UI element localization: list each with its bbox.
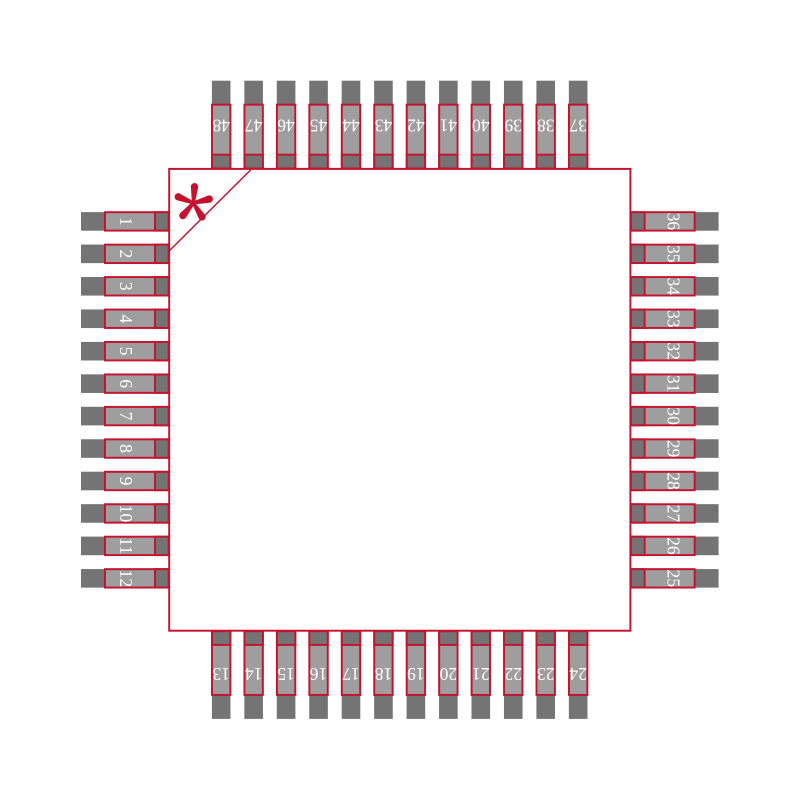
svg-text:21: 21 — [472, 664, 490, 684]
svg-text:46: 46 — [277, 116, 295, 136]
svg-text:19: 19 — [407, 664, 425, 684]
svg-text:42: 42 — [407, 116, 425, 136]
svg-text:10: 10 — [116, 505, 136, 523]
svg-text:16: 16 — [310, 664, 328, 684]
svg-text:14: 14 — [245, 664, 263, 684]
svg-text:33: 33 — [664, 310, 684, 328]
svg-text:15: 15 — [277, 664, 295, 684]
svg-text:31: 31 — [664, 375, 684, 393]
svg-text:25: 25 — [664, 570, 684, 588]
svg-text:44: 44 — [342, 116, 360, 136]
svg-text:26: 26 — [664, 537, 684, 555]
svg-text:43: 43 — [374, 116, 392, 136]
svg-text:28: 28 — [664, 472, 684, 490]
svg-text:32: 32 — [664, 342, 684, 360]
svg-text:41: 41 — [440, 116, 458, 136]
svg-text:1: 1 — [116, 217, 136, 226]
svg-text:30: 30 — [664, 407, 684, 425]
svg-text:12: 12 — [116, 570, 136, 588]
svg-text:24: 24 — [569, 664, 587, 684]
svg-text:3: 3 — [116, 282, 136, 291]
svg-text:7: 7 — [116, 412, 136, 421]
svg-text:4: 4 — [116, 314, 136, 323]
svg-text:22: 22 — [504, 664, 522, 684]
svg-text:2: 2 — [116, 249, 136, 258]
svg-text:37: 37 — [569, 116, 587, 136]
svg-text:5: 5 — [116, 347, 136, 356]
svg-text:6: 6 — [116, 379, 136, 388]
svg-text:34: 34 — [664, 278, 684, 296]
svg-text:13: 13 — [212, 664, 230, 684]
svg-text:48: 48 — [212, 116, 230, 136]
svg-text:47: 47 — [245, 116, 263, 136]
svg-text:39: 39 — [504, 116, 522, 136]
svg-text:23: 23 — [537, 664, 555, 684]
svg-text:29: 29 — [664, 440, 684, 458]
svg-text:9: 9 — [116, 477, 136, 486]
svg-text:36: 36 — [664, 213, 684, 231]
svg-text:8: 8 — [116, 444, 136, 453]
svg-text:35: 35 — [664, 245, 684, 263]
svg-text:11: 11 — [116, 537, 136, 554]
svg-text:17: 17 — [342, 664, 360, 684]
svg-text:40: 40 — [472, 116, 490, 136]
svg-text:20: 20 — [439, 664, 457, 684]
svg-text:38: 38 — [537, 116, 555, 136]
svg-text:18: 18 — [374, 664, 392, 684]
svg-text:27: 27 — [664, 505, 684, 523]
svg-text:45: 45 — [310, 116, 328, 136]
